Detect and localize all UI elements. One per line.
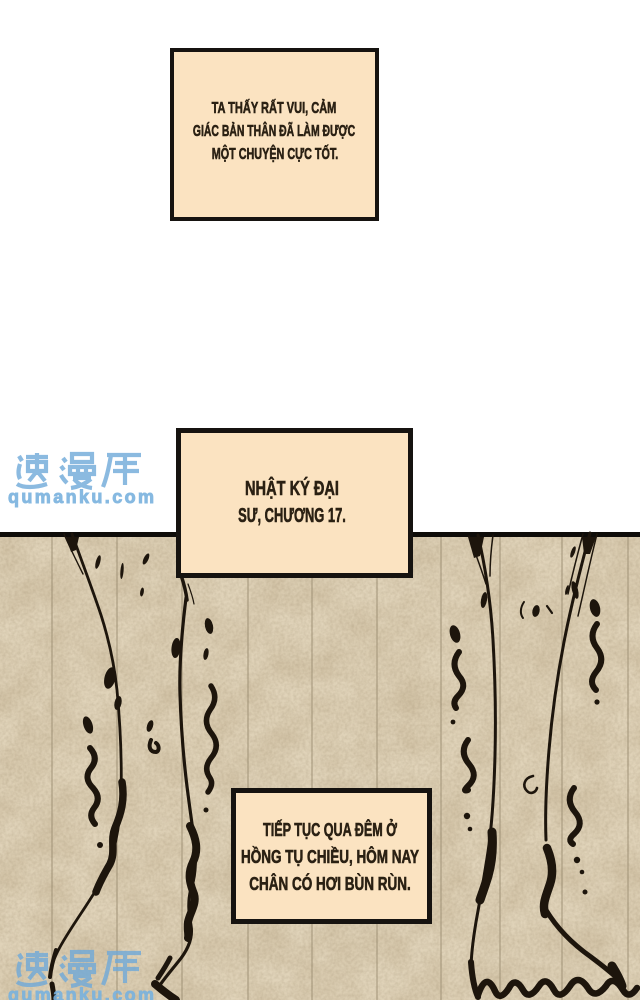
svg-text:qumanku.com: qumanku.com: [8, 985, 154, 1000]
